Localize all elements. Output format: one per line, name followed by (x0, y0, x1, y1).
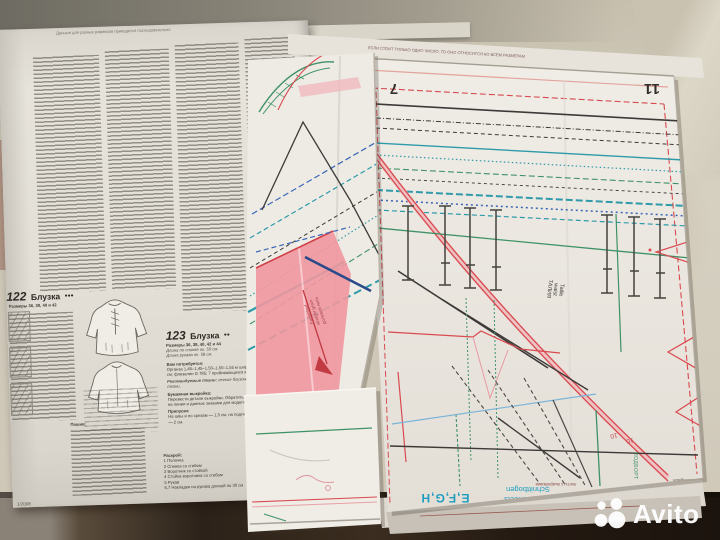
folded-strip-sheet: Fadenlauf straight grain долевая нить (246, 50, 386, 431)
sheet-number-7: 7 (390, 80, 398, 97)
bottom-folded-sheet (244, 388, 385, 535)
avito-watermark-text: Avito (633, 499, 700, 530)
avito-watermark: Avito (592, 497, 700, 531)
facing-label: ПОДБОРТ (632, 452, 638, 480)
photo-of-burda-magazine: Данные для разных размеров приводятся по… (0, 0, 720, 540)
edge-letters: E,F,G,H (420, 491, 469, 505)
edge-name-ru: листы с выкройками (535, 482, 576, 487)
main-pattern-sheet: 7 11 Taille waist ТАЛИЯ 10 10 ПОДБОРТ E,… (362, 58, 714, 516)
avito-logo-icon (592, 497, 628, 531)
blue-edge-bar (700, 234, 707, 348)
pattern-sheets: ЕСЛИ СТОИТ ТОЛЬКО ОДНО ЧИСЛО, ТО ОНО ОТН… (0, 0, 720, 540)
sheet-number-11: 11 (644, 80, 660, 97)
